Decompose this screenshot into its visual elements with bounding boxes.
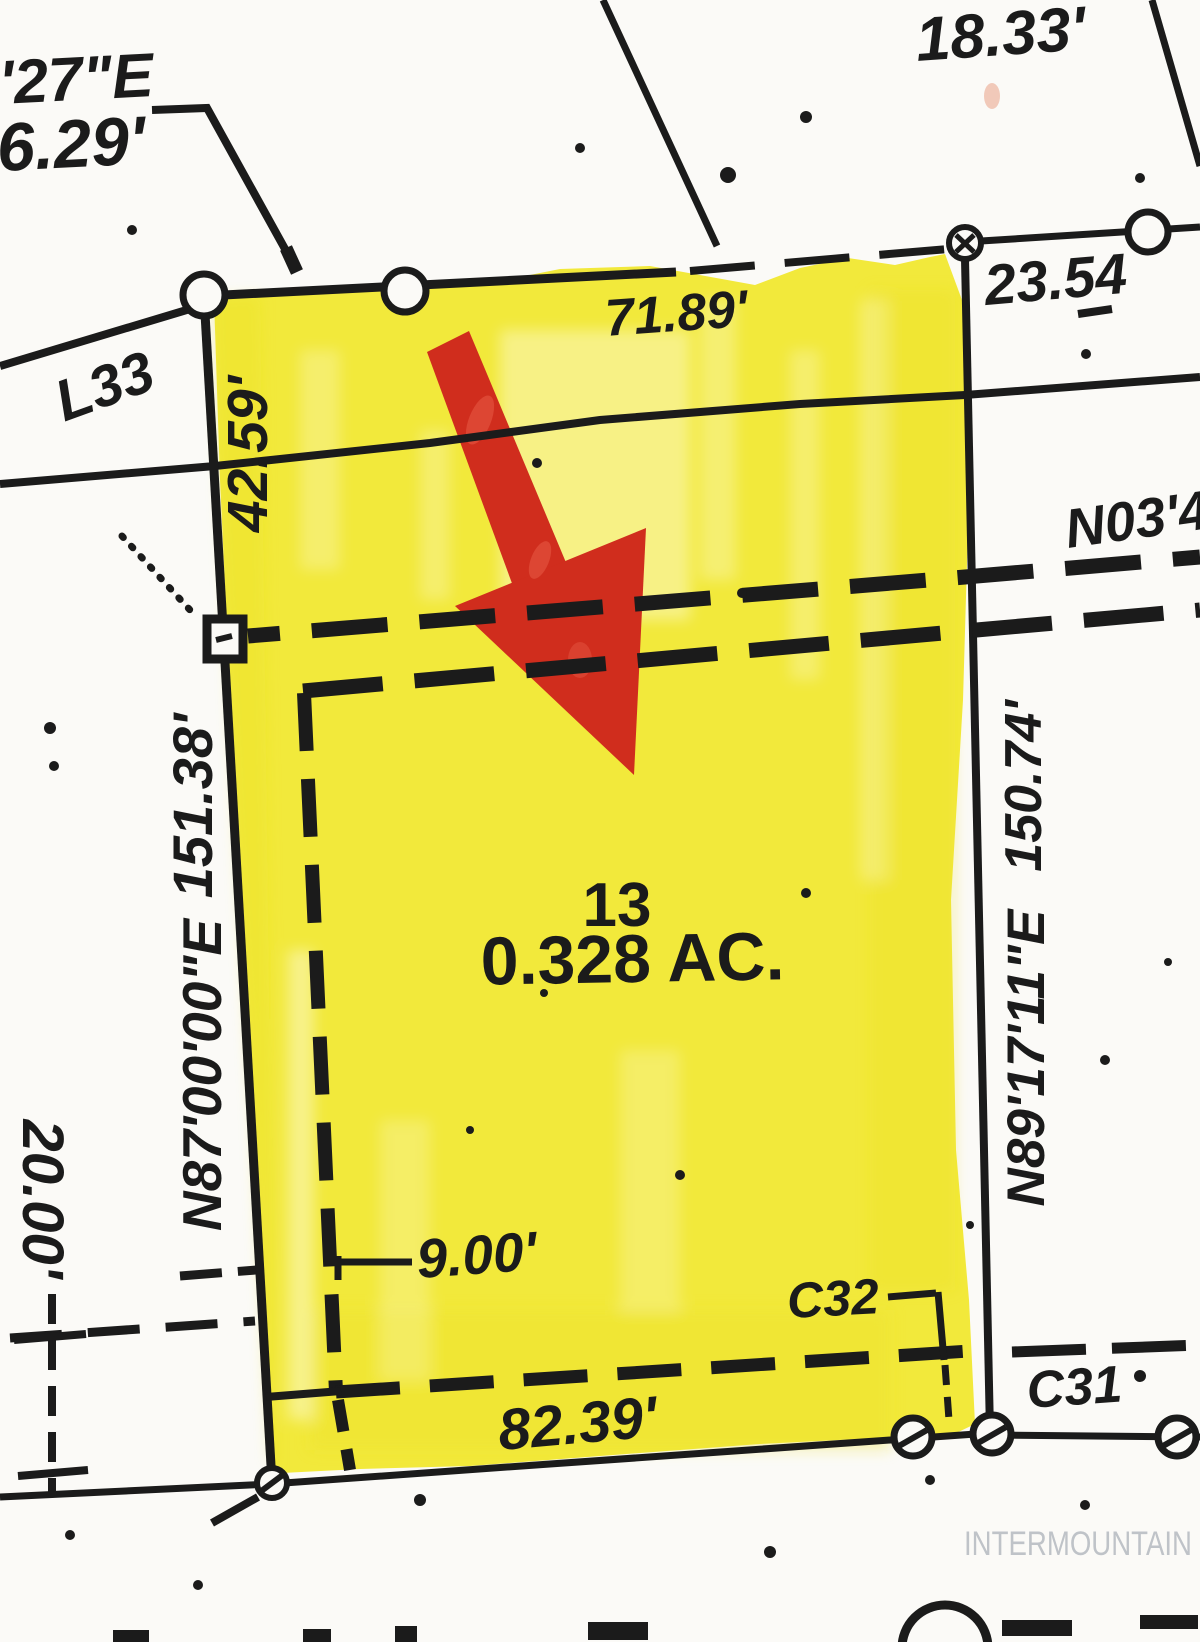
svg-text:150.74': 150.74' (995, 699, 1053, 872)
svg-text:0.328 AC.: 0.328 AC. (480, 918, 785, 999)
svg-text:20.00': 20.00' (10, 1119, 75, 1281)
svg-text:C32: C32 (786, 1268, 881, 1329)
svg-text:6.29': 6.29' (0, 102, 150, 186)
svg-text:INTERMOUNTAIN: INTERMOUNTAIN (964, 1525, 1192, 1563)
svg-text:C31: C31 (1025, 1355, 1124, 1420)
svg-text:18.33': 18.33' (913, 0, 1090, 75)
svg-text:71.89': 71.89' (603, 280, 751, 348)
svg-text:9.00': 9.00' (415, 1220, 541, 1290)
svg-text:42.59': 42.59' (216, 373, 280, 533)
svg-text:N87'00'00"E: N87'00'00"E (171, 917, 233, 1231)
svg-text:151.38': 151.38' (161, 712, 224, 898)
svg-text:N89'17'11"E: N89'17'11"E (997, 908, 1056, 1207)
